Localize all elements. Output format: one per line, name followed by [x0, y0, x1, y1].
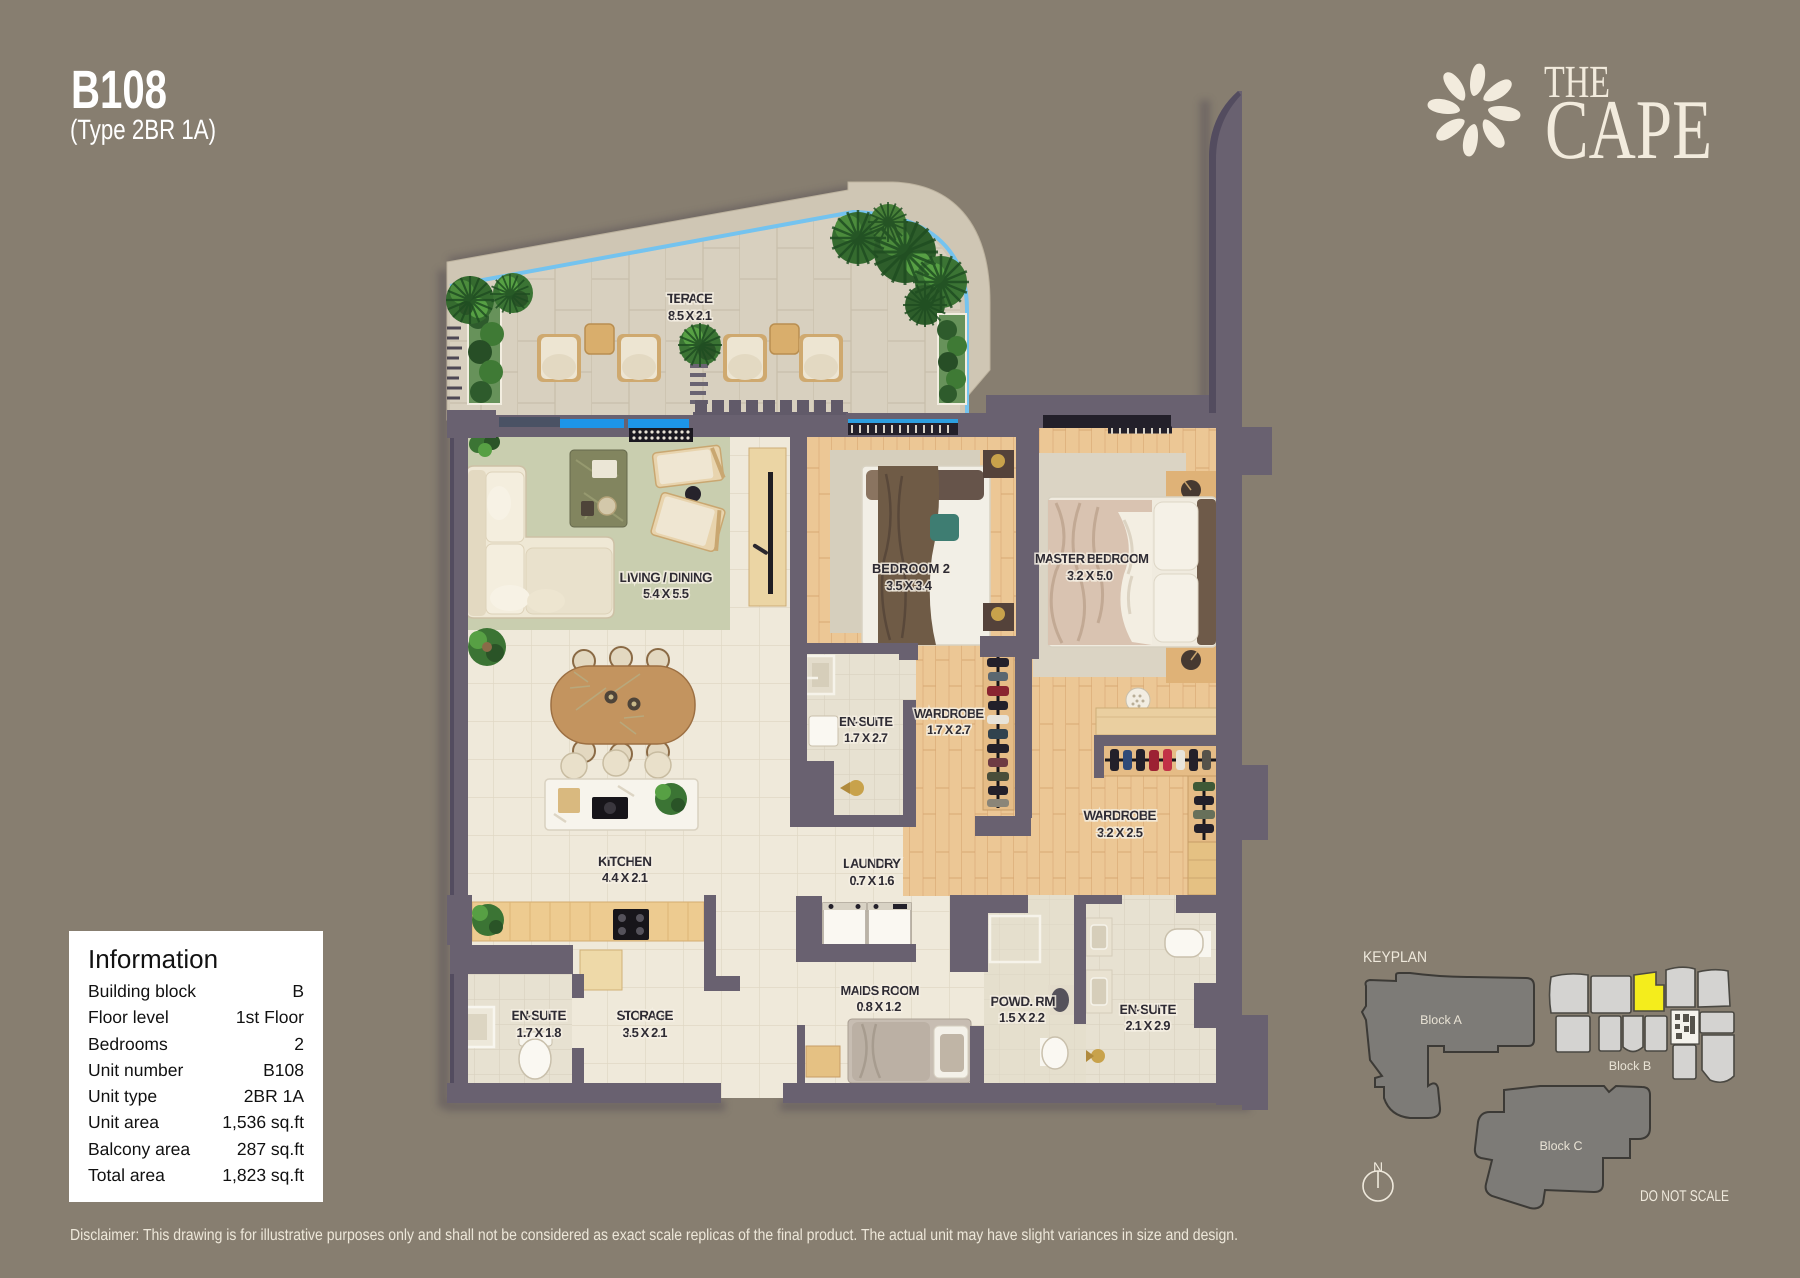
svg-text:3.2 X 5.0: 3.2 X 5.0: [1067, 568, 1113, 583]
svg-text:KEYPLAN: KEYPLAN: [1363, 949, 1427, 966]
svg-text:N: N: [1373, 1159, 1383, 1175]
svg-text:TERACE: TERACE: [667, 291, 713, 306]
svg-text:3.5 X 2.1: 3.5 X 2.1: [623, 1025, 668, 1040]
svg-text:0.7 X 1.6: 0.7 X 1.6: [850, 873, 895, 888]
svg-text:Balcony area: Balcony area: [88, 1139, 190, 1159]
svg-text:DO NOT SCALE: DO NOT SCALE: [1640, 1188, 1729, 1205]
svg-text:Total area: Total area: [88, 1165, 165, 1185]
svg-text:EN-SUITE: EN-SUITE: [1120, 1002, 1177, 1017]
svg-text:1st Floor: 1st Floor: [236, 1007, 304, 1027]
svg-text:Unit type: Unit type: [88, 1086, 157, 1106]
svg-text:Building block: Building block: [88, 981, 196, 1001]
svg-text:0.8 X 1.2: 0.8 X 1.2: [857, 999, 902, 1014]
svg-text:EN-SUITE: EN-SUITE: [839, 714, 893, 729]
svg-text:EN-SUITE: EN-SUITE: [512, 1008, 567, 1023]
svg-text:3.2 X 2.5: 3.2 X 2.5: [1097, 825, 1143, 840]
svg-text:5.4 X 5.5: 5.4 X 5.5: [643, 586, 689, 601]
svg-text:1.5 X 2.2: 1.5 X 2.2: [999, 1010, 1045, 1025]
svg-text:1.7 X 1.8: 1.7 X 1.8: [517, 1025, 562, 1040]
svg-text:B108: B108: [263, 1060, 304, 1080]
svg-text:2: 2: [294, 1034, 304, 1054]
svg-text:2BR 1A: 2BR 1A: [244, 1086, 305, 1106]
svg-text:(Type 2BR 1A): (Type 2BR 1A): [70, 114, 216, 145]
svg-text:Block C: Block C: [1539, 1139, 1582, 1153]
svg-text:POWD. RM: POWD. RM: [991, 994, 1056, 1009]
svg-text:LIVING / DINING: LIVING / DINING: [620, 570, 713, 585]
svg-text:Block B: Block B: [1609, 1059, 1651, 1073]
svg-text:Unit number: Unit number: [88, 1060, 183, 1080]
svg-text:Information: Information: [88, 944, 218, 974]
svg-text:287 sq.ft: 287 sq.ft: [237, 1139, 304, 1159]
svg-text:CAPE: CAPE: [1545, 83, 1712, 177]
svg-text:1.7 X 2.7: 1.7 X 2.7: [844, 731, 888, 745]
svg-text:Block A: Block A: [1420, 1013, 1462, 1027]
svg-text:LAUNDRY: LAUNDRY: [843, 856, 901, 871]
svg-text:BEDROOM 2: BEDROOM 2: [872, 561, 950, 576]
svg-text:B108: B108: [71, 60, 167, 120]
svg-text:B: B: [292, 981, 304, 1001]
svg-text:1,536 sq.ft: 1,536 sq.ft: [222, 1112, 304, 1132]
svg-text:WARDROBE: WARDROBE: [1084, 808, 1157, 823]
svg-text:1,823 sq.ft: 1,823 sq.ft: [222, 1165, 304, 1185]
svg-text:2.1 X 2.9: 2.1 X 2.9: [1126, 1018, 1171, 1033]
svg-text:STORAGE: STORAGE: [617, 1008, 674, 1023]
svg-text:MASTER BEDROOM: MASTER BEDROOM: [1035, 551, 1149, 566]
svg-text:WARDROBE: WARDROBE: [914, 706, 984, 721]
svg-text:Disclaimer: This drawing is fo: Disclaimer: This drawing is for illustra…: [70, 1227, 1238, 1244]
svg-text:MAIDS ROOM: MAIDS ROOM: [841, 983, 920, 998]
svg-text:Bedrooms: Bedrooms: [88, 1034, 168, 1054]
svg-text:Floor level: Floor level: [88, 1007, 169, 1027]
svg-text:1.7 X 2.7: 1.7 X 2.7: [927, 723, 971, 737]
svg-text:Unit area: Unit area: [88, 1112, 159, 1132]
svg-text:8.5 X 2.1: 8.5 X 2.1: [668, 308, 712, 323]
svg-text:3.5 X 3.4: 3.5 X 3.4: [886, 578, 933, 593]
svg-text:4.4 X 2.1: 4.4 X 2.1: [602, 870, 648, 885]
svg-text:KITCHEN: KITCHEN: [598, 854, 652, 869]
